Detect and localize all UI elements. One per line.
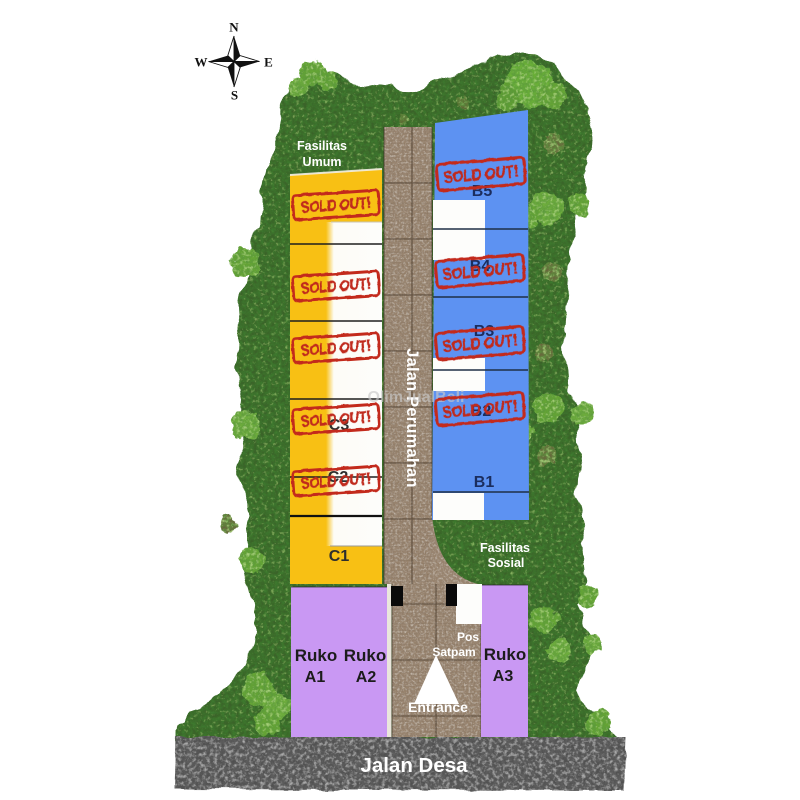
svg-text:Jalan Desa: Jalan Desa bbox=[360, 754, 468, 777]
svg-text:Jalan Perumahan: Jalan Perumahan bbox=[403, 348, 421, 488]
svg-text:A1: A1 bbox=[305, 669, 326, 686]
svg-text:Ruko: Ruko bbox=[484, 645, 527, 664]
svg-text:Ruko: Ruko bbox=[295, 646, 338, 665]
svg-text:N: N bbox=[229, 20, 239, 35]
svg-text:S: S bbox=[231, 88, 238, 103]
svg-text:A2: A2 bbox=[356, 669, 377, 686]
svg-text:Pos: Pos bbox=[457, 630, 479, 644]
svg-text:C1: C1 bbox=[329, 548, 350, 565]
svg-text:Sosial: Sosial bbox=[488, 556, 525, 570]
svg-text:A3: A3 bbox=[493, 668, 514, 685]
svg-text:Ruko: Ruko bbox=[344, 646, 387, 665]
svg-text:W: W bbox=[195, 55, 208, 70]
svg-text:Entrance: Entrance bbox=[408, 699, 468, 715]
svg-text:Fasilitas: Fasilitas bbox=[297, 139, 347, 153]
svg-text:Satpam: Satpam bbox=[432, 645, 475, 659]
svg-text:Fasilitas: Fasilitas bbox=[480, 541, 530, 555]
svg-text:Umum: Umum bbox=[303, 155, 342, 169]
svg-text:B1: B1 bbox=[474, 474, 495, 491]
svg-text:E: E bbox=[264, 55, 273, 70]
